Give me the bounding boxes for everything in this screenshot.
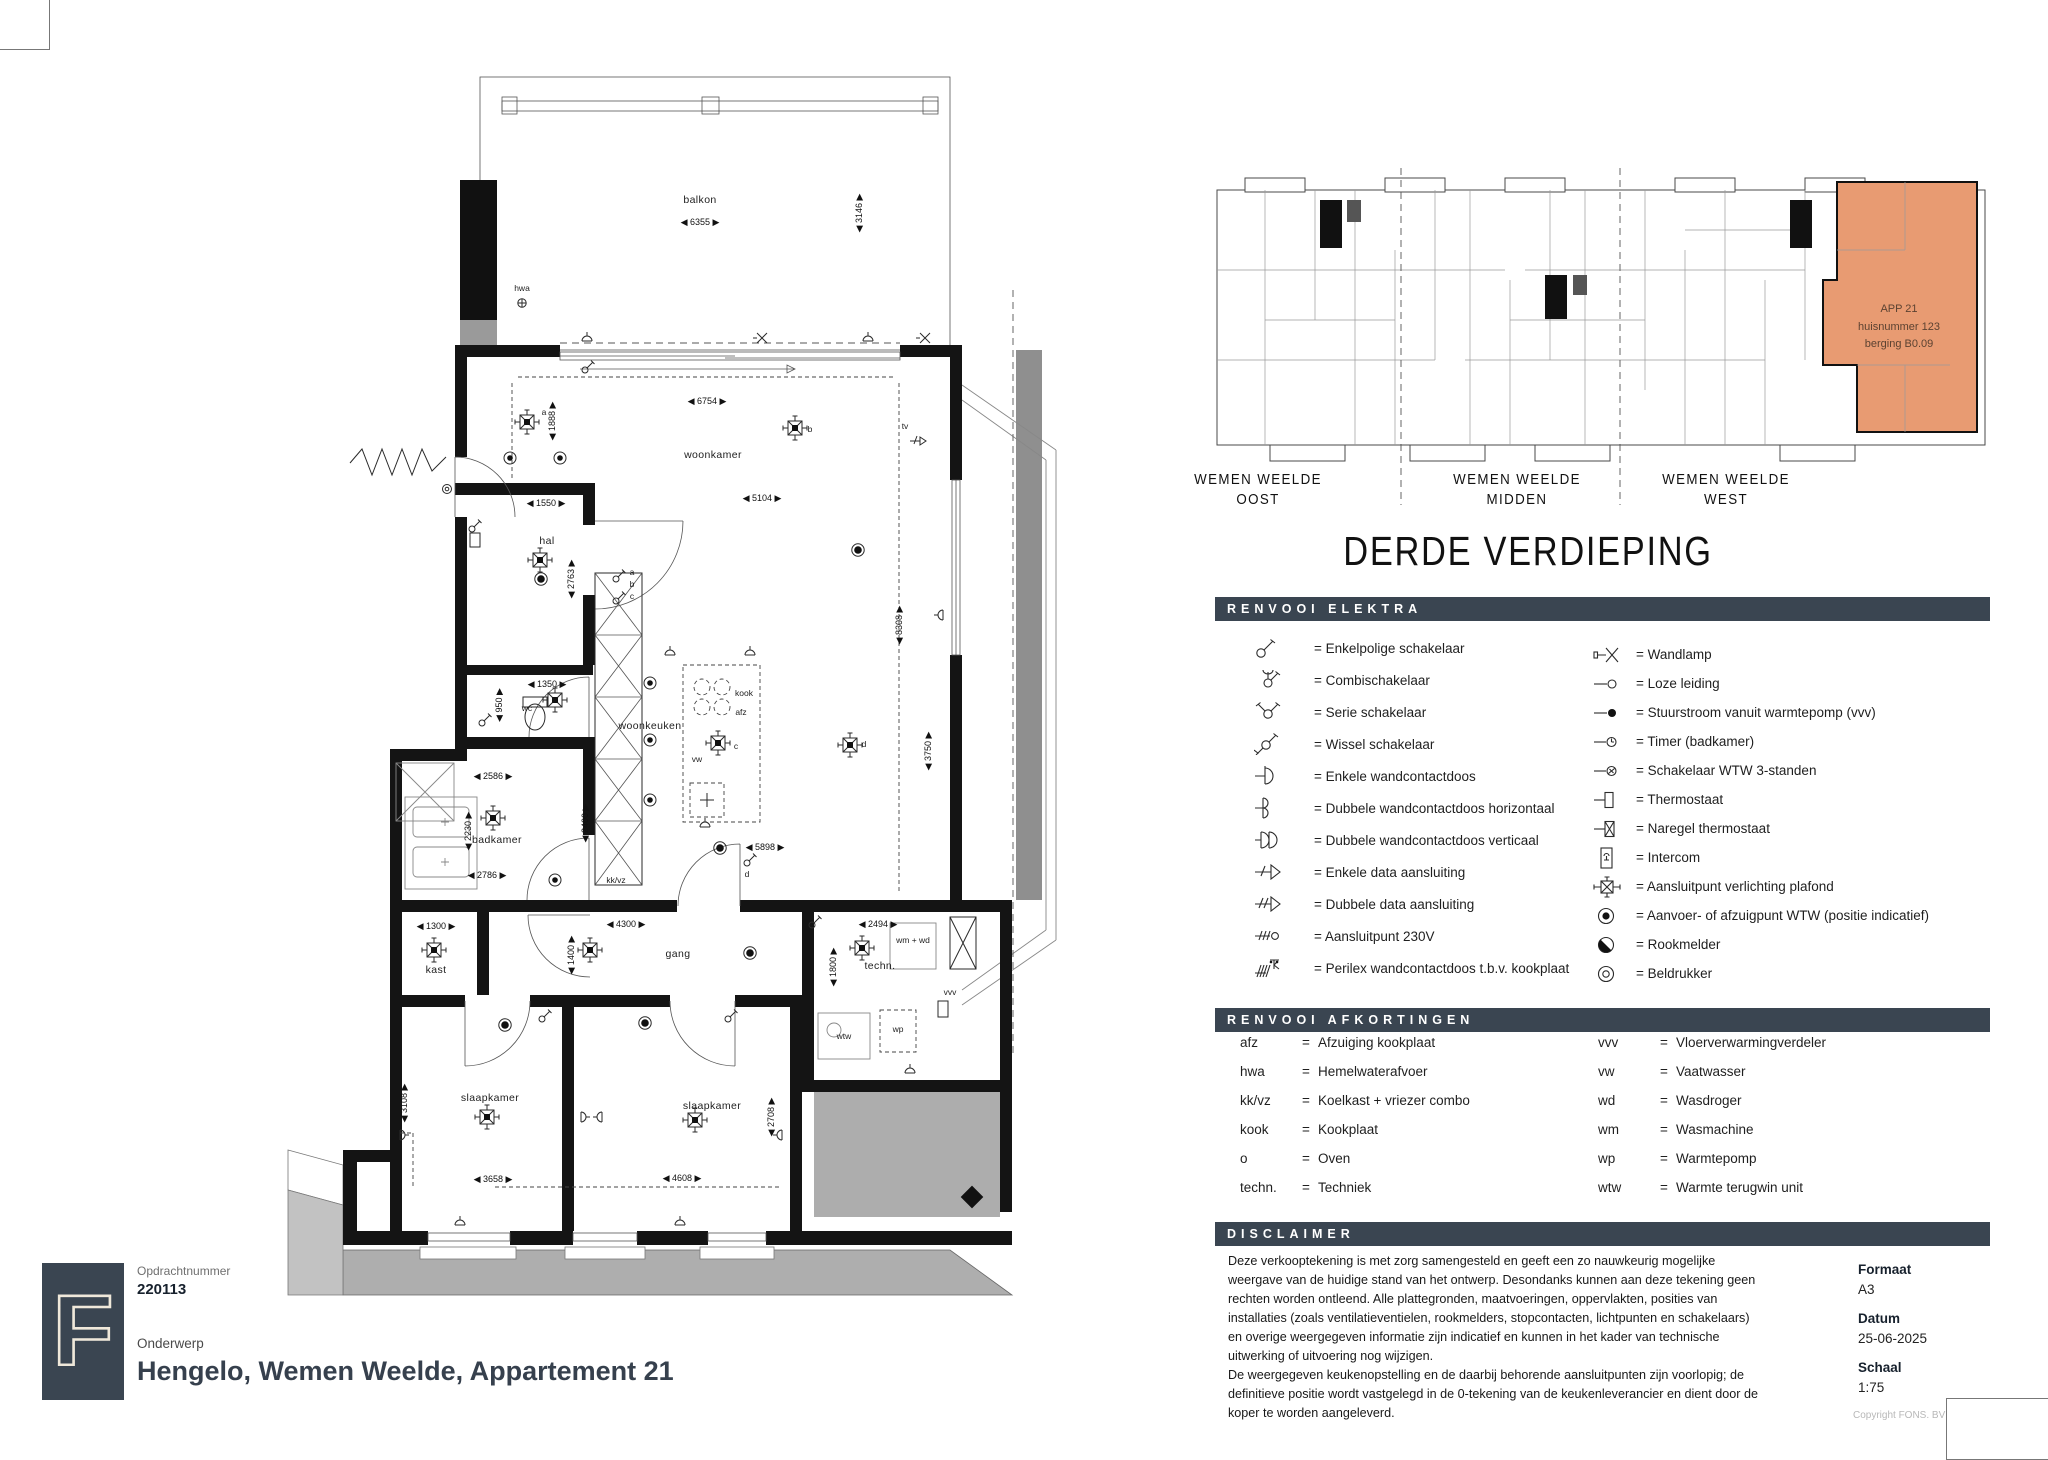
legend-item: = Aansluitpunt verlichting plafond bbox=[1578, 872, 1929, 901]
serie-icon bbox=[1222, 701, 1314, 723]
abbreviation-text: wp bbox=[1598, 1151, 1660, 1166]
wcd2v-icon bbox=[1222, 829, 1314, 851]
legend-item-label: = Dubbele wandcontactdoos verticaal bbox=[1314, 833, 1539, 848]
legend-item: = Rookmelder bbox=[1578, 930, 1929, 959]
abbreviation-text: vvv bbox=[1598, 1035, 1660, 1050]
equipment-label: wc bbox=[521, 703, 533, 713]
legend-item-label: = Enkele data aansluiting bbox=[1314, 865, 1465, 880]
legend-item-label: = Wissel schakelaar bbox=[1314, 737, 1434, 752]
bathroom-fixtures bbox=[396, 697, 547, 889]
room-label: slaapkamer bbox=[683, 1100, 741, 1112]
company-logo: F bbox=[42, 1263, 124, 1400]
copyright: Copyright FONS. BV bbox=[1853, 1410, 1945, 1421]
datum-label: Datum bbox=[1858, 1311, 1900, 1326]
legend-item: = Wissel schakelaar bbox=[1222, 728, 1569, 760]
legend-item: = Intercom bbox=[1578, 843, 1929, 872]
abbreviation-text: afz bbox=[1240, 1035, 1302, 1050]
stuur-icon bbox=[1578, 702, 1636, 724]
schaal-label: Schaal bbox=[1858, 1360, 1902, 1375]
abbreviation-text: = bbox=[1302, 1064, 1318, 1079]
legend-item: = Beldrukker bbox=[1578, 959, 1929, 988]
legend-item-label: = Schakelaar WTW 3-standen bbox=[1636, 763, 1816, 778]
equipment-label: kk/vz bbox=[606, 875, 625, 885]
abbreviation-row: afz=Afzuiging kookplaat bbox=[1240, 1028, 1470, 1057]
legend-item-label: = Thermostaat bbox=[1636, 792, 1723, 807]
formaat-label: Formaat bbox=[1858, 1262, 1911, 1277]
overview-cores bbox=[1320, 200, 1812, 319]
legend-item-label: = Enkelpolige schakelaar bbox=[1314, 641, 1464, 656]
abbreviation-text: vw bbox=[1598, 1064, 1660, 1079]
legend-item-label: = Perilex wandcontactdoos t.b.v. kookpla… bbox=[1314, 961, 1569, 976]
enkelpolig-icon bbox=[1222, 637, 1314, 659]
dimension-label: ◀ 3108 ▶ bbox=[399, 1083, 409, 1122]
abbreviation-text: Vaatwasser bbox=[1676, 1064, 1746, 1079]
abbreviation-text: = bbox=[1660, 1180, 1676, 1195]
floor-overview-plan: APP 21huisnummer 123berging B0.09 bbox=[1205, 160, 1995, 520]
dimension-label: ◀ 1350 ▶ bbox=[528, 679, 567, 689]
abbreviation-row: hwa=Hemelwaterafvoer bbox=[1240, 1057, 1470, 1086]
equipment-label: c bbox=[734, 741, 739, 751]
onderwerp-value: Hengelo, Wemen Weelde, Appartement 21 bbox=[137, 1356, 674, 1387]
abbreviation-row: wtw=Warmte terugwin unit bbox=[1598, 1173, 1826, 1202]
legend-item: = Dubbele wandcontactdoos horizontaal bbox=[1222, 792, 1569, 824]
schaal-value: 1:75 bbox=[1858, 1380, 1884, 1395]
dimension-label: ◀ 1400 ▶ bbox=[566, 935, 576, 974]
dimension-label: ◀ 950 ▶ bbox=[494, 688, 504, 722]
abbreviation-row: kook=Kookplaat bbox=[1240, 1115, 1470, 1144]
dimension-label: ◀ 5898 ▶ bbox=[746, 842, 785, 852]
legend-item: = Thermostaat bbox=[1578, 785, 1929, 814]
equipment-label: d bbox=[745, 869, 750, 879]
legend-item: = Perilex wandcontactdoos t.b.v. kookpla… bbox=[1222, 952, 1569, 984]
legend-item-label: = Aansluitpunt verlichting plafond bbox=[1636, 879, 1834, 894]
legend-elektra-header: RENVOOI ELEKTRA bbox=[1215, 597, 1990, 621]
legend-item: = Wandlamp bbox=[1578, 640, 1929, 669]
loze-icon bbox=[1578, 673, 1636, 695]
abbreviation-row: wp=Warmtepomp bbox=[1598, 1144, 1826, 1173]
abbreviation-text: Warmtepomp bbox=[1676, 1151, 1757, 1166]
equipment-label: tv bbox=[902, 421, 909, 431]
wandlamp-icon bbox=[1578, 644, 1636, 666]
equipment-label: wtw bbox=[836, 1031, 853, 1041]
dimension-label: ◀ 2230 ▶ bbox=[463, 811, 473, 850]
dimension-label: ◀ 2708 ▶ bbox=[766, 1097, 776, 1136]
legend-item: = Schakelaar WTW 3-standen bbox=[1578, 756, 1929, 785]
equipment-label: kook bbox=[735, 688, 754, 698]
legend-item-label: = Aanvoer- of afzuigpunt WTW (positie in… bbox=[1636, 908, 1929, 923]
abbreviation-row: vw=Vaatwasser bbox=[1598, 1057, 1826, 1086]
room-label: hal bbox=[539, 535, 554, 547]
abbreviation-text: = bbox=[1302, 1035, 1318, 1050]
perilex-icon bbox=[1222, 957, 1314, 979]
legend-item: = Aanvoer- of afzuigpunt WTW (positie in… bbox=[1578, 901, 1929, 930]
dimension-label: ◀ 3658 ▶ bbox=[474, 1174, 513, 1184]
legend-item-label: = Enkele wandcontactdoos bbox=[1314, 769, 1476, 784]
thermo-icon bbox=[1578, 789, 1636, 811]
abbreviation-row: techn.=Techniek bbox=[1240, 1173, 1470, 1202]
room-label: balkon bbox=[683, 194, 716, 206]
legend-item: = Combischakelaar bbox=[1222, 664, 1569, 696]
legend-item-label: = Stuurstroom vanuit warmtepomp (vvv) bbox=[1636, 705, 1876, 720]
onderwerp-label: Onderwerp bbox=[137, 1336, 204, 1351]
legend-item: = Timer (badkamer) bbox=[1578, 727, 1929, 756]
dimension-label: ◀ 3750 ▶ bbox=[923, 731, 933, 770]
floor-title: DERDE VERDIEPING bbox=[1242, 528, 1813, 575]
dimension-label: ◀ 2763 ▶ bbox=[566, 559, 576, 598]
corner-mark-top-left bbox=[0, 0, 50, 50]
legend-elektra-left: = Enkelpolige schakelaar= Combischakelaa… bbox=[1222, 632, 1569, 984]
legend-item-label: = Loze leiding bbox=[1636, 676, 1720, 691]
formaat-value: A3 bbox=[1858, 1282, 1875, 1297]
abbreviation-text: Techniek bbox=[1318, 1180, 1371, 1195]
legend-item-label: = Dubbele wandcontactdoos horizontaal bbox=[1314, 801, 1555, 816]
abbreviation-text: kook bbox=[1240, 1122, 1302, 1137]
datum-value: 25-06-2025 bbox=[1858, 1331, 1927, 1346]
wcd2h-icon bbox=[1222, 797, 1314, 819]
wcd1-icon bbox=[1222, 765, 1314, 787]
room-label: techn. bbox=[864, 960, 895, 972]
abbreviation-text: wm bbox=[1598, 1122, 1660, 1137]
dimension-label: ◀ 2494 ▶ bbox=[859, 919, 898, 929]
disclaimer-header: DISCLAIMER bbox=[1215, 1222, 1990, 1246]
afkortingen-right: vvv=Vloerverwarmingverdelervw=Vaatwasser… bbox=[1598, 1028, 1826, 1202]
abbreviation-text: = bbox=[1660, 1093, 1676, 1108]
legend-item: = Enkele data aansluiting bbox=[1222, 856, 1569, 888]
dimension-label: ◀ 5104 ▶ bbox=[743, 493, 782, 503]
naregel-icon bbox=[1578, 818, 1636, 840]
dimension-label: ◀ 1300 ▶ bbox=[417, 921, 456, 931]
abbreviation-text: Warmte terugwin unit bbox=[1676, 1180, 1803, 1195]
balcony bbox=[460, 77, 950, 352]
opdrachtnummer-value: 220113 bbox=[137, 1281, 186, 1298]
plafond-icon bbox=[1578, 876, 1636, 898]
abbreviation-row: vvv=Vloerverwarmingverdeler bbox=[1598, 1028, 1826, 1057]
abbreviation-text: Koelkast + vriezer combo bbox=[1318, 1093, 1470, 1108]
abbreviation-row: o=Oven bbox=[1240, 1144, 1470, 1173]
legend-item: = Stuurstroom vanuit warmtepomp (vvv) bbox=[1578, 698, 1929, 727]
abbreviation-text: Oven bbox=[1318, 1151, 1350, 1166]
equipment-label: a bbox=[542, 407, 547, 417]
legend-item-label: = Combischakelaar bbox=[1314, 673, 1430, 688]
legend-item-label: = Wandlamp bbox=[1636, 647, 1712, 662]
dimension-label: ◀ 1800 ▶ bbox=[828, 947, 838, 986]
equipment-label: afz bbox=[735, 707, 746, 717]
abbreviation-text: Hemelwaterafvoer bbox=[1318, 1064, 1428, 1079]
abbreviation-text: = bbox=[1302, 1093, 1318, 1108]
dimension-label: ◀ 8308 ▶ bbox=[894, 605, 904, 644]
dimension-label: ◀ 6355 ▶ bbox=[681, 217, 720, 227]
abbreviation-text: = bbox=[1660, 1151, 1676, 1166]
abbreviation-text: Vloerverwarmingverdeler bbox=[1676, 1035, 1826, 1050]
legend-item: = Enkelpolige schakelaar bbox=[1222, 632, 1569, 664]
legend-item: = Dubbele wandcontactdoos verticaal bbox=[1222, 824, 1569, 856]
data1-icon bbox=[1222, 861, 1314, 883]
abbreviation-text: = bbox=[1302, 1122, 1318, 1137]
section-label-west: WEMEN WEELDEWEST bbox=[1625, 470, 1827, 510]
abbreviation-text: = bbox=[1660, 1035, 1676, 1050]
abbreviation-row: wm=Wasmachine bbox=[1598, 1115, 1826, 1144]
room-label: kast bbox=[426, 964, 447, 976]
legend-elektra-right: = Wandlamp= Loze leiding= Stuurstroom va… bbox=[1578, 640, 1929, 988]
equipment-label: hwa bbox=[514, 283, 530, 293]
highlighted-apartment-label: huisnummer 123 bbox=[1858, 321, 1940, 333]
opdrachtnummer-label: Opdrachtnummer bbox=[137, 1264, 230, 1278]
rook-icon bbox=[1578, 934, 1636, 956]
equipment-label: b bbox=[808, 424, 813, 434]
bel-icon bbox=[1578, 963, 1636, 985]
equipment-label: vvv bbox=[944, 987, 958, 997]
legend-item-label: = Intercom bbox=[1636, 850, 1700, 865]
legend-item-label: = Aansluitpunt 230V bbox=[1314, 929, 1434, 944]
abbreviation-text: = bbox=[1660, 1122, 1676, 1137]
combi-icon bbox=[1222, 669, 1314, 691]
legend-item: = Naregel thermostaat bbox=[1578, 814, 1929, 843]
abbreviation-text: Wasdroger bbox=[1676, 1093, 1742, 1108]
data2-icon bbox=[1222, 893, 1314, 915]
abbreviation-row: kk/vz=Koelkast + vriezer combo bbox=[1240, 1086, 1470, 1115]
legend-item: = Aansluitpunt 230V bbox=[1222, 920, 1569, 952]
drawing-sheet: { "titleblock": { "logo_letter": "F", "o… bbox=[0, 0, 2048, 1448]
equipment-label: a bbox=[630, 567, 635, 577]
legend-item: = Serie schakelaar bbox=[1222, 696, 1569, 728]
room-label: woonkamer bbox=[683, 449, 742, 461]
neighbour-structure-bottom-right bbox=[814, 1092, 1000, 1217]
wtwpunt-icon bbox=[1578, 905, 1636, 927]
abbreviation-text: Afzuiging kookplaat bbox=[1318, 1035, 1435, 1050]
overview-room-lines bbox=[1217, 190, 1805, 445]
abbreviation-text: = bbox=[1302, 1180, 1318, 1195]
section-label-midden: WEMEN WEELDEMIDDEN bbox=[1416, 470, 1618, 510]
legend-item: = Enkele wandcontactdoos bbox=[1222, 760, 1569, 792]
highlighted-apartment-label: berging B0.09 bbox=[1865, 338, 1934, 350]
intercom-icon bbox=[1578, 847, 1636, 869]
equipment-label: b bbox=[630, 579, 635, 589]
dimension-label: ◀ 3146 ▶ bbox=[854, 193, 864, 232]
legend-item-label: = Timer (badkamer) bbox=[1636, 734, 1754, 749]
legend-item: = Loze leiding bbox=[1578, 669, 1929, 698]
legend-item-label: = Beldrukker bbox=[1636, 966, 1712, 981]
section-label-oost: WEMEN WEELDEOOST bbox=[1157, 470, 1359, 510]
legend-item-label: = Rookmelder bbox=[1636, 937, 1720, 952]
abbreviation-text: Wasmachine bbox=[1676, 1122, 1754, 1137]
equipment-label: d bbox=[862, 739, 867, 749]
dimension-label: ◀ 2786 ▶ bbox=[468, 870, 507, 880]
abbreviation-text: wd bbox=[1598, 1093, 1660, 1108]
v230-icon bbox=[1222, 925, 1314, 947]
logo-letter-f: F bbox=[52, 1275, 113, 1387]
room-label: gang bbox=[666, 948, 691, 960]
equipment-label: wm + wd bbox=[895, 935, 930, 945]
equipment-label: wp bbox=[892, 1024, 904, 1034]
abbreviation-text: hwa bbox=[1240, 1064, 1302, 1079]
timer-icon bbox=[1578, 731, 1636, 753]
entry-zigzag bbox=[350, 449, 446, 475]
dimension-label: ◀ 1550 ▶ bbox=[527, 498, 566, 508]
equipment-label: vw bbox=[692, 754, 703, 764]
abbreviation-text: = bbox=[1660, 1064, 1676, 1079]
dimension-label: ◀ 1888 ▶ bbox=[547, 401, 557, 440]
legend-item: = Dubbele data aansluiting bbox=[1222, 888, 1569, 920]
apartment-floorplan: balkon◀ 6355 ▶◀ 3146 ▶hwawoonkamer◀ 6754… bbox=[250, 55, 1060, 1300]
abbreviation-row: wd=Wasdroger bbox=[1598, 1086, 1826, 1115]
abbreviation-text: o bbox=[1240, 1151, 1302, 1166]
abbreviation-text: Kookplaat bbox=[1318, 1122, 1378, 1137]
room-label: slaapkamer bbox=[461, 1092, 519, 1104]
highlighted-apartment-label: APP 21 bbox=[1880, 303, 1917, 315]
corner-mark-bottom-right bbox=[1946, 1398, 2048, 1460]
wtw3-icon bbox=[1578, 760, 1636, 782]
dimension-label: ◀ 4608 ▶ bbox=[663, 1173, 702, 1183]
room-label: badkamer bbox=[472, 834, 522, 846]
dimension-label: ◀ 6754 ▶ bbox=[688, 396, 727, 406]
disclaimer-text: Deze verkooptekening is met zorg samenge… bbox=[1228, 1252, 1788, 1423]
abbreviation-text: techn. bbox=[1240, 1180, 1302, 1195]
dimension-label: ◀ 2400 ▶ bbox=[580, 803, 590, 842]
room-label: woonkeuken bbox=[618, 720, 682, 732]
legend-item-label: = Serie schakelaar bbox=[1314, 705, 1426, 720]
wissel-icon bbox=[1222, 733, 1314, 755]
legend-item-label: = Dubbele data aansluiting bbox=[1314, 897, 1474, 912]
dimension-label: ◀ 2586 ▶ bbox=[474, 771, 513, 781]
abbreviation-text: = bbox=[1302, 1151, 1318, 1166]
dimension-label: ◀ 4300 ▶ bbox=[607, 919, 646, 929]
abbreviation-text: wtw bbox=[1598, 1180, 1660, 1195]
legend-item-label: = Naregel thermostaat bbox=[1636, 821, 1770, 836]
highlighted-apartment: APP 21huisnummer 123berging B0.09 bbox=[1823, 182, 1977, 432]
abbreviation-text: kk/vz bbox=[1240, 1093, 1302, 1108]
afkortingen-left: afz=Afzuiging kookplaathwa=Hemelwaterafv… bbox=[1240, 1028, 1470, 1202]
